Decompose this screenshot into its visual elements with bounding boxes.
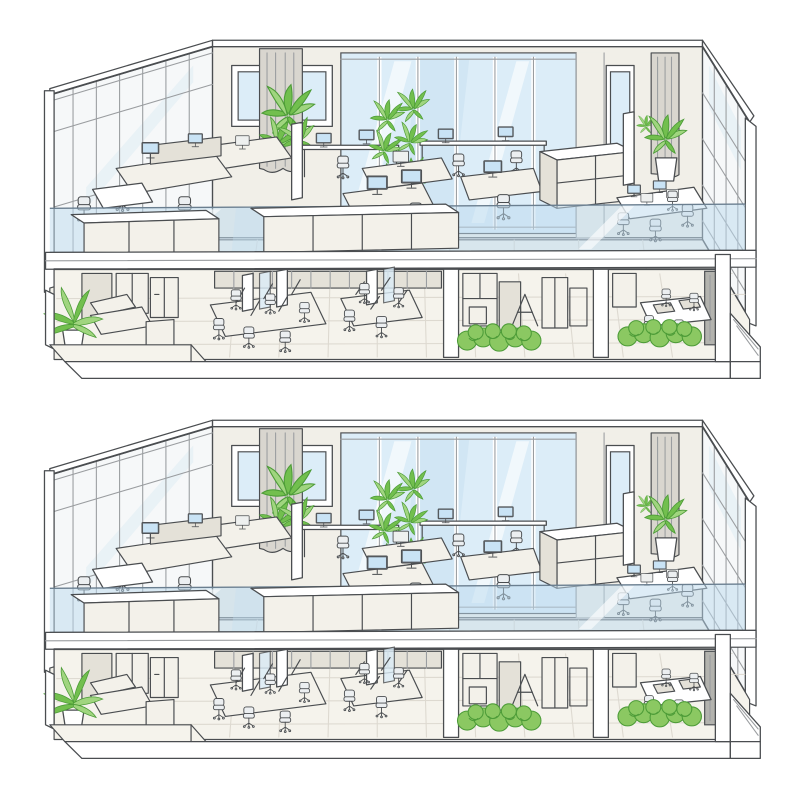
office-cutaway-top xyxy=(44,40,760,378)
illustration-canvas xyxy=(0,0,800,800)
office-cutaway-bottom xyxy=(44,420,760,758)
office-cutaway-illustration xyxy=(0,0,800,800)
